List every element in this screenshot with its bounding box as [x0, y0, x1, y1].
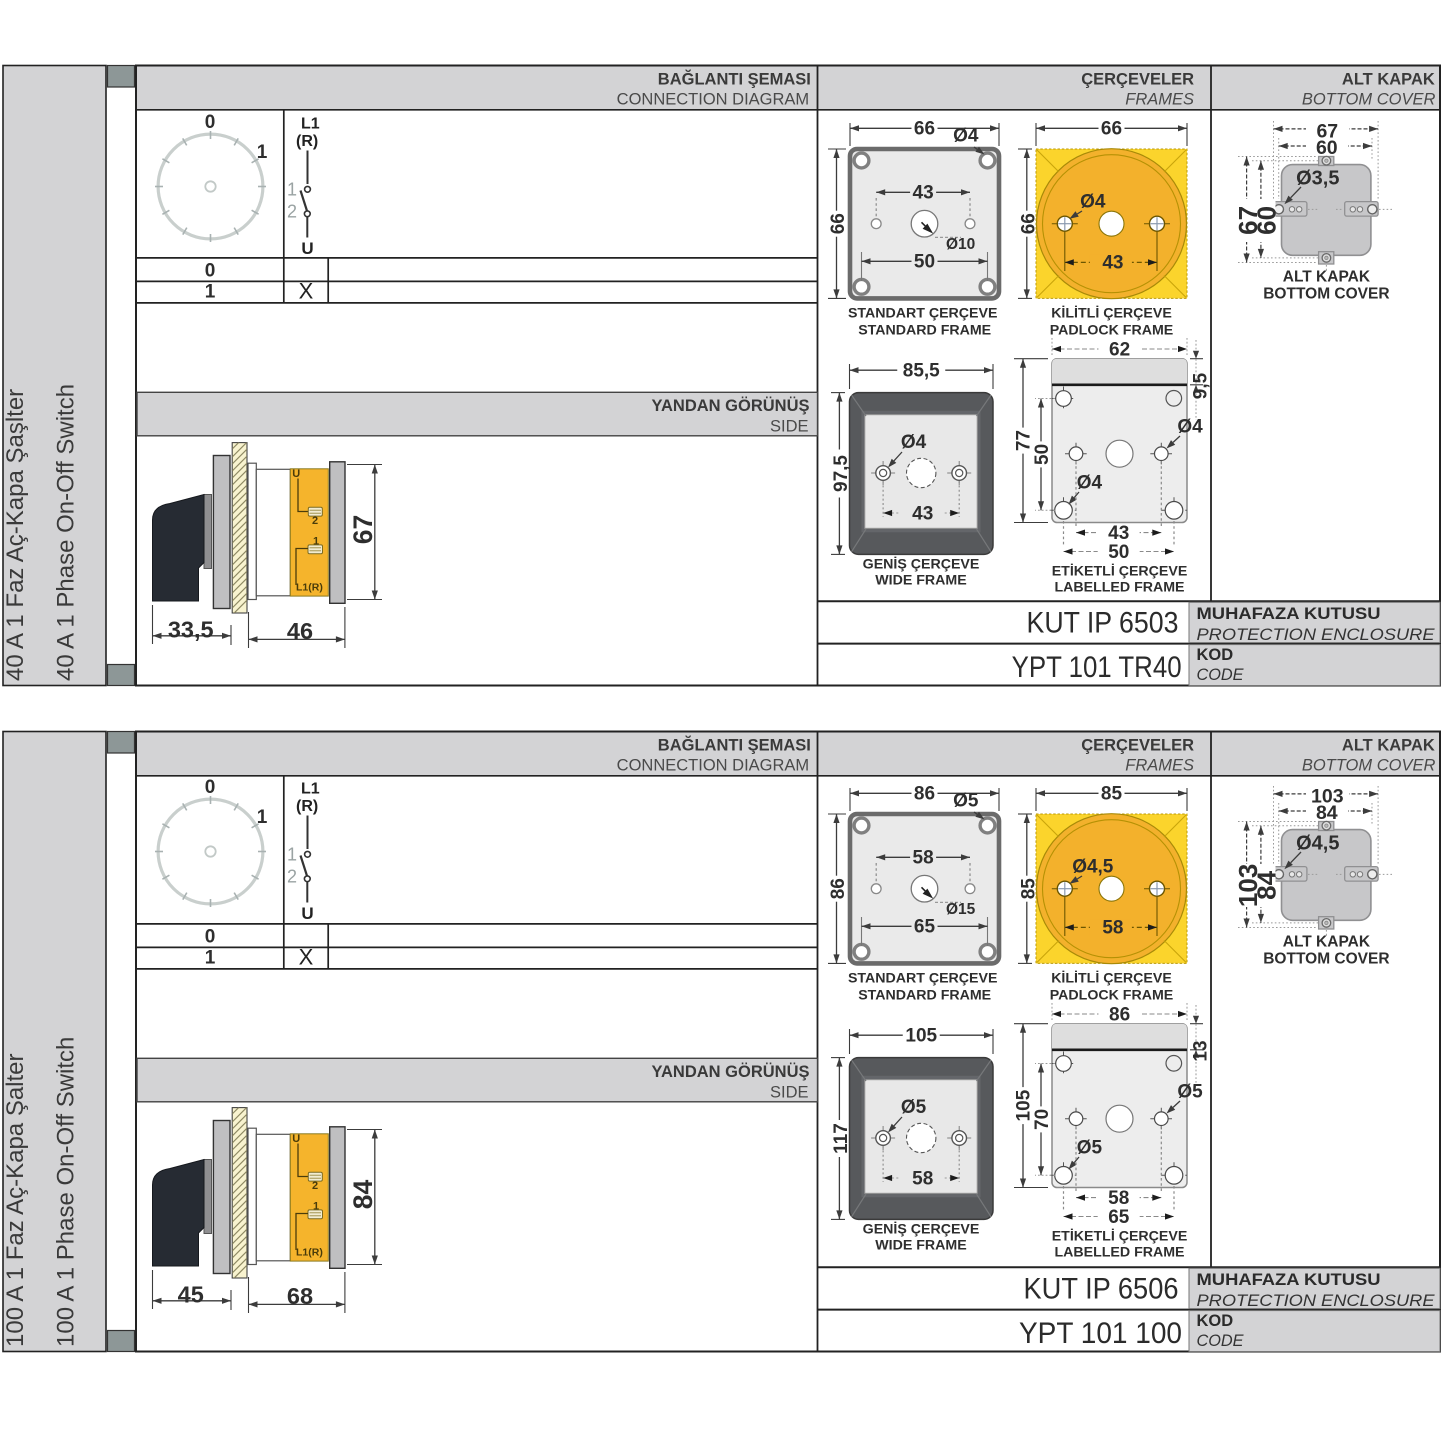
svg-text:MUHAFAZA KUTUSU: MUHAFAZA KUTUSU — [1197, 1271, 1381, 1289]
svg-text:Ø4: Ø4 — [1080, 192, 1106, 213]
svg-text:70: 70 — [1032, 1109, 1053, 1130]
svg-text:67: 67 — [348, 515, 378, 544]
svg-text:1: 1 — [287, 180, 297, 200]
svg-text:PROTECTION ENCLOSURE: PROTECTION ENCLOSURE — [1197, 626, 1436, 644]
svg-text:Ø10: Ø10 — [946, 236, 975, 253]
svg-text:50: 50 — [914, 252, 935, 273]
svg-text:WIDE FRAME: WIDE FRAME — [875, 1237, 966, 1253]
svg-text:40 A 1 Faz Aç-Kapa Şaşlter: 40 A 1 Faz Aç-Kapa Şaşlter — [2, 389, 29, 681]
svg-text:ÇERÇEVELER: ÇERÇEVELER — [1081, 736, 1194, 754]
svg-text:84: 84 — [1316, 802, 1338, 824]
svg-text:117: 117 — [831, 1123, 852, 1154]
svg-text:Ø15: Ø15 — [946, 901, 976, 918]
svg-text:GENİŞ ÇERÇEVE: GENİŞ ÇERÇEVE — [863, 555, 980, 572]
svg-text:1: 1 — [257, 807, 268, 828]
svg-text:YANDAN GÖRÜNÜŞ: YANDAN GÖRÜNÜŞ — [652, 396, 810, 415]
svg-text:0: 0 — [205, 112, 216, 133]
svg-text:1: 1 — [287, 845, 297, 865]
svg-text:U: U — [301, 904, 313, 923]
svg-text:BOTTOM COVER: BOTTOM COVER — [1302, 90, 1436, 108]
svg-text:2: 2 — [312, 1180, 318, 1192]
svg-text:ETİKETLİ ÇERÇEVE: ETİKETLİ ÇERÇEVE — [1052, 1228, 1188, 1245]
svg-text:L1(R): L1(R) — [296, 1247, 323, 1259]
svg-text:Ø4: Ø4 — [901, 432, 927, 453]
svg-text:13: 13 — [1191, 1040, 1212, 1061]
svg-text:45: 45 — [178, 1281, 204, 1307]
svg-text:SIDE: SIDE — [770, 418, 809, 436]
svg-text:1: 1 — [257, 142, 268, 163]
svg-text:FRAMES: FRAMES — [1125, 756, 1194, 774]
svg-text:Ø5: Ø5 — [1077, 1138, 1103, 1159]
svg-text:85,5: 85,5 — [903, 360, 940, 381]
svg-text:GENİŞ ÇERÇEVE: GENİŞ ÇERÇEVE — [863, 1220, 980, 1237]
svg-text:68: 68 — [287, 1283, 313, 1309]
svg-text:STANDARD FRAME: STANDARD FRAME — [858, 322, 991, 338]
svg-text:1: 1 — [205, 282, 216, 303]
svg-text:KOD: KOD — [1197, 646, 1234, 664]
svg-text:85: 85 — [1018, 878, 1039, 900]
svg-text:9,5: 9,5 — [1191, 372, 1212, 399]
svg-text:43: 43 — [913, 183, 934, 204]
svg-text:Ø5: Ø5 — [1177, 1082, 1203, 1103]
svg-text:50: 50 — [1032, 444, 1053, 465]
svg-text:X: X — [299, 945, 314, 970]
svg-text:ALT KAPAK: ALT KAPAK — [1283, 269, 1371, 286]
svg-text:YPT 101 100: YPT 101 100 — [1019, 1317, 1182, 1350]
svg-text:PADLOCK FRAME: PADLOCK FRAME — [1050, 322, 1173, 338]
svg-text:KUT IP 6506: KUT IP 6506 — [1024, 1273, 1179, 1306]
svg-text:65: 65 — [1108, 1207, 1130, 1228]
svg-text:PADLOCK FRAME: PADLOCK FRAME — [1050, 987, 1173, 1003]
svg-text:0: 0 — [205, 261, 216, 282]
svg-text:100 A 1 Phase On-Off Switch: 100 A 1 Phase On-Off Switch — [53, 1037, 80, 1347]
svg-text:1: 1 — [205, 948, 216, 969]
svg-text:LABELLED FRAME: LABELLED FRAME — [1054, 1245, 1184, 1261]
svg-text:CODE: CODE — [1197, 1332, 1245, 1350]
svg-text:YANDAN GÖRÜNÜŞ: YANDAN GÖRÜNÜŞ — [652, 1062, 810, 1081]
svg-text:33,5: 33,5 — [168, 616, 214, 642]
svg-text:43: 43 — [1102, 253, 1123, 274]
svg-text:BAĞLANTI ŞEMASI: BAĞLANTI ŞEMASI — [658, 735, 811, 754]
svg-text:84: 84 — [348, 1180, 378, 1210]
svg-text:43: 43 — [912, 503, 933, 524]
svg-text:Ø4,5: Ø4,5 — [1296, 833, 1339, 855]
svg-text:ALT KAPAK: ALT KAPAK — [1342, 70, 1435, 88]
svg-text:84: 84 — [1252, 870, 1282, 899]
svg-text:L1(R): L1(R) — [296, 582, 323, 594]
svg-text:Ø4: Ø4 — [953, 126, 979, 147]
svg-text:58: 58 — [1102, 918, 1123, 939]
svg-text:BAĞLANTI ŞEMASI: BAĞLANTI ŞEMASI — [658, 69, 811, 88]
svg-text:58: 58 — [912, 1168, 933, 1189]
svg-text:86: 86 — [914, 784, 935, 805]
svg-text:PROTECTION ENCLOSURE: PROTECTION ENCLOSURE — [1197, 1292, 1436, 1310]
svg-text:66: 66 — [1018, 213, 1039, 234]
svg-text:KİLİTLİ ÇERÇEVE: KİLİTLİ ÇERÇEVE — [1051, 969, 1172, 986]
svg-text:40 A 1 Phase On-Off Switch: 40 A 1 Phase On-Off Switch — [53, 384, 80, 681]
svg-text:Ø4: Ø4 — [1177, 417, 1203, 438]
svg-text:CONNECTION DIAGRAM: CONNECTION DIAGRAM — [617, 756, 810, 774]
svg-text:2: 2 — [287, 867, 297, 887]
svg-text:KUT IP 6503: KUT IP 6503 — [1027, 607, 1179, 640]
svg-text:2: 2 — [287, 202, 297, 222]
svg-text:CODE: CODE — [1197, 666, 1245, 684]
svg-text:FRAMES: FRAMES — [1125, 90, 1194, 108]
svg-text:Ø4: Ø4 — [1077, 473, 1103, 494]
svg-text:SIDE: SIDE — [770, 1084, 809, 1102]
svg-text:X: X — [299, 279, 314, 304]
svg-text:ÇERÇEVELER: ÇERÇEVELER — [1081, 70, 1194, 88]
svg-text:66: 66 — [1101, 119, 1122, 140]
svg-text:KOD: KOD — [1197, 1312, 1234, 1330]
svg-text:BOTTOM COVER: BOTTOM COVER — [1263, 286, 1389, 303]
svg-text:62: 62 — [1109, 339, 1130, 360]
svg-text:KİLİTLİ ÇERÇEVE: KİLİTLİ ÇERÇEVE — [1051, 304, 1172, 321]
svg-text:ETİKETLİ ÇERÇEVE: ETİKETLİ ÇERÇEVE — [1052, 563, 1188, 580]
svg-text:Ø3,5: Ø3,5 — [1296, 168, 1339, 190]
svg-text:86: 86 — [1109, 1004, 1130, 1025]
svg-text:85: 85 — [1101, 784, 1123, 805]
svg-text:STANDARD FRAME: STANDARD FRAME — [858, 987, 991, 1003]
svg-text:100 A 1 Faz Aç-Kapa Şalter: 100 A 1 Faz Aç-Kapa Şalter — [2, 1053, 29, 1347]
svg-text:97,5: 97,5 — [831, 455, 852, 492]
svg-text:Ø5: Ø5 — [953, 791, 979, 812]
svg-text:46: 46 — [287, 618, 313, 644]
svg-text:L1: L1 — [301, 781, 320, 798]
svg-text:66: 66 — [914, 119, 935, 140]
svg-text:U: U — [292, 468, 300, 480]
svg-text:STANDART ÇERÇEVE: STANDART ÇERÇEVE — [848, 970, 998, 986]
svg-text:2: 2 — [312, 515, 318, 527]
svg-text:CONNECTION DIAGRAM: CONNECTION DIAGRAM — [617, 90, 810, 108]
svg-text:58: 58 — [913, 848, 934, 869]
svg-text:65: 65 — [914, 917, 936, 938]
svg-text:LABELLED FRAME: LABELLED FRAME — [1054, 580, 1184, 596]
svg-text:0: 0 — [205, 927, 216, 948]
svg-text:MUHAFAZA KUTUSU: MUHAFAZA KUTUSU — [1197, 605, 1381, 623]
svg-text:ALT KAPAK: ALT KAPAK — [1283, 934, 1371, 951]
svg-text:60: 60 — [1316, 137, 1338, 159]
svg-text:50: 50 — [1108, 542, 1129, 563]
svg-text:60: 60 — [1252, 206, 1282, 235]
svg-text:(R): (R) — [296, 798, 318, 815]
svg-text:58: 58 — [1108, 1188, 1129, 1209]
svg-text:Ø4,5: Ø4,5 — [1072, 857, 1114, 878]
svg-text:0: 0 — [205, 777, 216, 798]
svg-text:43: 43 — [1108, 523, 1129, 544]
svg-text:STANDART ÇERÇEVE: STANDART ÇERÇEVE — [848, 305, 998, 321]
svg-text:ALT KAPAK: ALT KAPAK — [1342, 736, 1435, 754]
svg-text:105: 105 — [905, 1025, 937, 1046]
svg-text:YPT 101 TR40: YPT 101 TR40 — [1012, 651, 1182, 684]
svg-text:U: U — [301, 239, 313, 258]
svg-text:U: U — [292, 1133, 300, 1145]
svg-text:86: 86 — [828, 878, 849, 899]
svg-text:BOTTOM COVER: BOTTOM COVER — [1263, 951, 1389, 968]
svg-text:(R): (R) — [296, 133, 318, 150]
svg-text:Ø5: Ø5 — [901, 1097, 927, 1118]
svg-text:66: 66 — [828, 213, 849, 234]
svg-text:BOTTOM COVER: BOTTOM COVER — [1302, 756, 1436, 774]
svg-text:L1: L1 — [301, 116, 320, 133]
svg-text:WIDE FRAME: WIDE FRAME — [875, 572, 966, 588]
